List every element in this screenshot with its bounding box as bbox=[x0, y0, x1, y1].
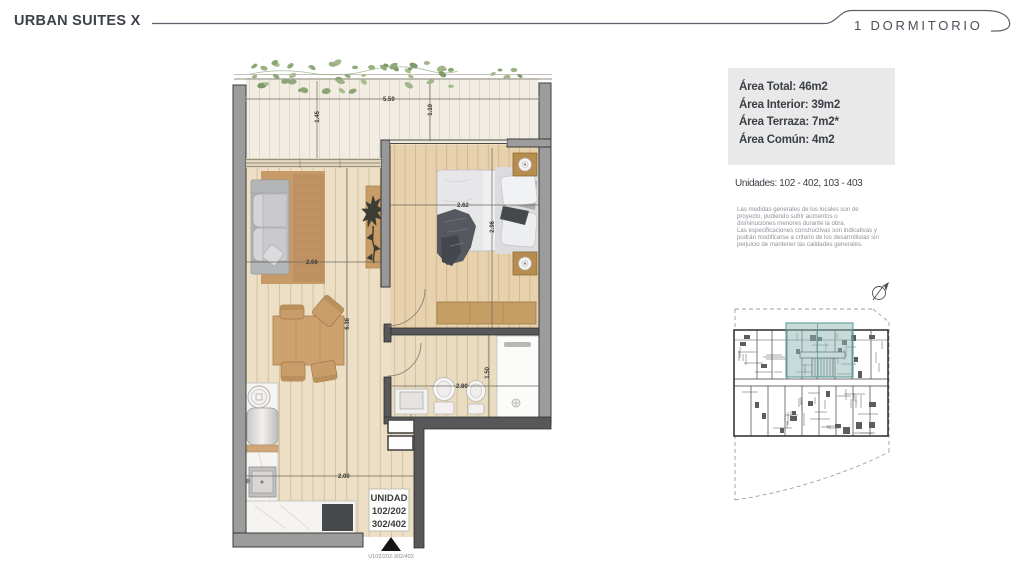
svg-text:2.96: 2.96 bbox=[490, 220, 496, 232]
svg-text:2.00: 2.00 bbox=[338, 474, 350, 480]
svg-text:2.80: 2.80 bbox=[456, 384, 468, 390]
svg-text:1.45: 1.45 bbox=[315, 110, 321, 122]
svg-text:102/202: 102/202 bbox=[372, 506, 406, 517]
svg-text:302/402: 302/402 bbox=[372, 519, 406, 530]
svg-text:1.19: 1.19 bbox=[428, 103, 434, 115]
svg-text:2.62: 2.62 bbox=[457, 203, 469, 209]
svg-text:UNIDAD: UNIDAD bbox=[371, 493, 408, 504]
svg-text:5.59: 5.59 bbox=[383, 97, 395, 103]
svg-text:2.66: 2.66 bbox=[306, 260, 318, 266]
svg-text:U102/202-302/402: U102/202-302/402 bbox=[368, 554, 414, 560]
svg-text:1.50: 1.50 bbox=[485, 366, 491, 378]
svg-text:6.38: 6.38 bbox=[345, 317, 351, 329]
